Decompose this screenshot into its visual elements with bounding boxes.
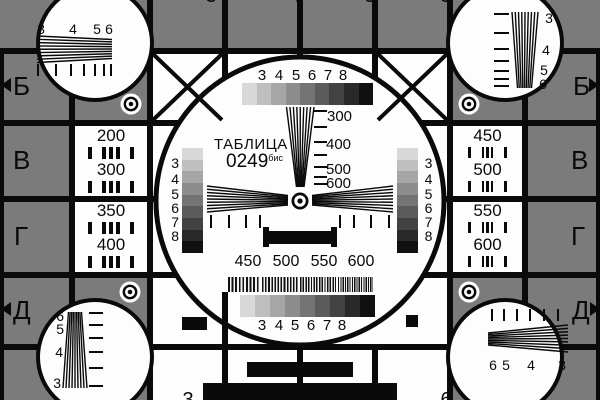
panel-freq: 300: [72, 161, 150, 178]
grayscale-label: 8: [421, 229, 436, 243]
wedge-number: 5: [536, 63, 552, 77]
overlay-graphics: [0, 0, 600, 400]
grayscale-label: 4: [271, 318, 287, 333]
column-digit-bottom: 6: [436, 390, 456, 400]
grayscale-label: 7: [320, 68, 336, 83]
definition-ticks: [72, 221, 150, 234]
grayscale-label: 4: [271, 68, 287, 83]
row-label-left-b: Б: [13, 73, 30, 99]
panel-freq: 550: [450, 202, 525, 219]
wedge-number: 5: [498, 358, 514, 372]
wedge-line: [522, 12, 523, 88]
column-digit-top: 6: [435, 0, 455, 6]
card-number-suffix: бис: [268, 153, 283, 163]
definition-ticks: [450, 180, 525, 193]
column-digit-top: 4: [285, 0, 305, 6]
row-arrow-left-d: [1, 302, 11, 316]
card-title: ТАБЛИЦА: [214, 137, 288, 152]
test-card: 3 4 5 6 3 4 5 6 6 5 4 3 6 5 4 3 3 4 5 6 …: [0, 0, 600, 400]
resolution-label: 400: [326, 137, 351, 152]
bullseye-target: [128, 290, 133, 295]
wedge-line: [207, 201, 288, 202]
wedge-number: 3: [45, 376, 61, 390]
wedge-number: 6: [101, 22, 117, 36]
grayscale-label: 8: [334, 318, 350, 333]
wedge-number: 4: [523, 358, 539, 372]
corner-circle-top-left: [38, 0, 152, 100]
burst-label: 550: [304, 254, 344, 270]
definition-ticks: [72, 255, 150, 268]
card-number-digits: 0249: [226, 151, 268, 172]
panel-freq: 350: [72, 202, 150, 219]
black-rectangle-right: [406, 315, 418, 327]
wedge-number: 4: [65, 22, 81, 36]
row-label-left-d: Д: [13, 297, 31, 323]
grayscale-label: 5: [164, 187, 179, 201]
grayscale-label: 4: [164, 172, 179, 186]
row-label-left-v: В: [13, 147, 30, 173]
grayscale-label: 6: [421, 201, 436, 215]
burst-strip-600: [338, 277, 373, 292]
column-digit-top: 5: [360, 0, 380, 6]
wedge-line: [488, 339, 568, 340]
reference-bar-cap-right: [331, 227, 337, 247]
panel-freq: 450: [450, 127, 525, 144]
arc-crossing-line: [222, 292, 228, 349]
row-label-right-g: Г: [571, 223, 585, 249]
definition-ticks: [72, 180, 150, 193]
grayscale-label: 5: [421, 187, 436, 201]
row-label-right-b: Б: [573, 73, 590, 99]
burst-strip-450: [228, 277, 260, 292]
wedge-number: 3: [554, 358, 570, 372]
grayscale-label: 6: [304, 68, 320, 83]
row-label-right-d: Д: [572, 297, 590, 323]
wedge-line: [525, 12, 526, 88]
bullseye-target: [467, 102, 472, 107]
panel-freq: 200: [72, 127, 150, 144]
burst-strip-550: [300, 277, 336, 292]
grayscale-label: 3: [254, 318, 270, 333]
grayscale-label: 8: [164, 229, 179, 243]
grayscale-label: 6: [164, 201, 179, 215]
burst-label: 500: [266, 254, 306, 270]
burst-strip-500: [262, 277, 298, 292]
wedge-number: 5: [48, 322, 64, 336]
row-label-left-g: Г: [14, 223, 28, 249]
grayscale-label: 6: [303, 318, 319, 333]
wedge-number: 4: [538, 43, 554, 57]
wedge-number: 3: [33, 22, 49, 36]
grayscale-label: 7: [164, 215, 179, 229]
grayscale-label: 3: [254, 68, 270, 83]
column-digit-top: 3: [201, 0, 221, 6]
grayscale-label: 5: [287, 318, 303, 333]
wedge-number: 4: [47, 345, 63, 359]
reference-bar: [266, 231, 334, 244]
grayscale-right: [397, 148, 418, 253]
card-number: 0249бис: [226, 152, 283, 171]
column-digit-bottom: 5: [374, 390, 394, 400]
resolution-label: 300: [327, 109, 352, 124]
burst-label: 600: [341, 254, 381, 270]
row-label-right-v: В: [571, 147, 588, 173]
definition-ticks: [72, 146, 150, 159]
row-arrow-left-b: [1, 78, 11, 92]
panel-freq: 600: [450, 236, 525, 253]
row-arrow-right-b: [589, 78, 599, 92]
grayscale-label: 7: [421, 215, 436, 229]
definition-ticks: [450, 221, 525, 234]
grayscale-label: 3: [421, 156, 436, 170]
burst-label: 450: [228, 254, 268, 270]
wedge-number: 6: [535, 77, 551, 91]
column-digit-bottom: 4: [284, 390, 304, 400]
wedge-number: 3: [541, 11, 557, 25]
grayscale-label: 7: [319, 318, 335, 333]
panel-freq: 400: [72, 236, 150, 253]
column-digit-bottom: 3: [178, 390, 198, 400]
definition-ticks: [450, 255, 525, 268]
wedge-line: [312, 201, 393, 202]
grayscale-bottom: [240, 295, 375, 317]
wedge-line: [37, 46, 112, 47]
grayscale-label: 8: [335, 68, 351, 83]
black-rectangle-left: [182, 317, 207, 330]
bullseye-target: [467, 290, 472, 295]
resolution-label: 600: [326, 176, 351, 191]
grayscale-label: 3: [164, 156, 179, 170]
grayscale-label: 4: [421, 172, 436, 186]
grayscale-top: [242, 83, 373, 105]
definition-ticks: [450, 146, 525, 159]
bullseye-target: [129, 102, 134, 107]
bottom-bar-short: [247, 362, 353, 377]
panel-freq: 500: [450, 161, 525, 178]
bullseye-target: [297, 198, 302, 203]
grayscale-left: [182, 148, 203, 253]
row-arrow-right-d: [590, 302, 600, 316]
grayscale-label: 5: [288, 68, 304, 83]
